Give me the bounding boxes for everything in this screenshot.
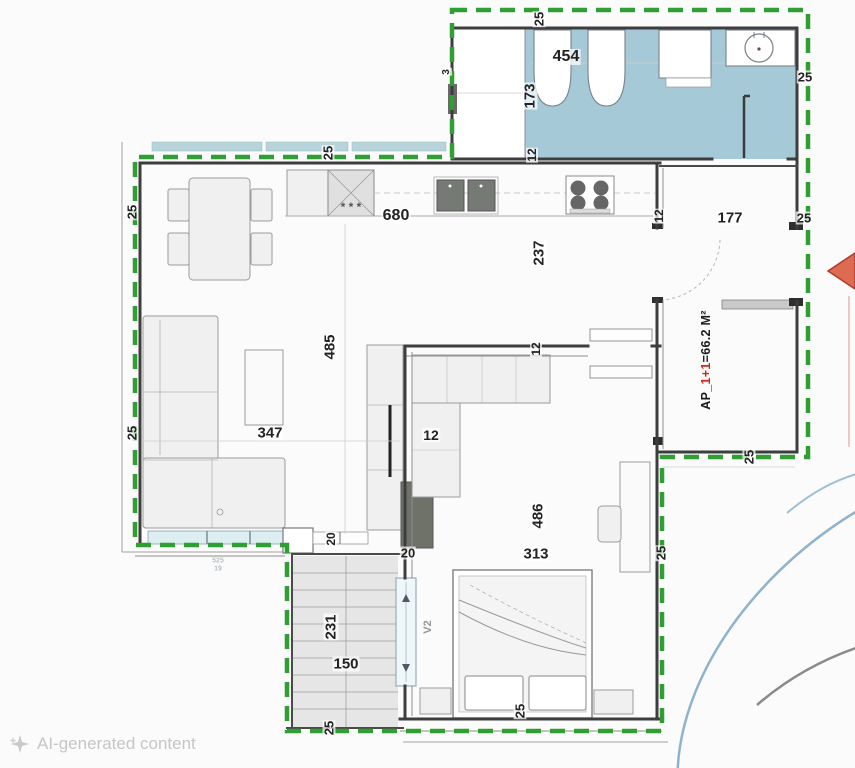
site-curve-small: [787, 473, 855, 513]
shelf-unit: [367, 345, 403, 530]
desk-chair: [598, 506, 621, 542]
ai-watermark-text: AI-generated content: [37, 734, 196, 754]
burner: [594, 181, 609, 196]
sparkle-pen-icon: [10, 734, 30, 754]
apartment-area-label: AP_1+1=66.2 M²: [699, 310, 713, 409]
burner: [571, 181, 586, 196]
ai-watermark: AI-generated content: [10, 734, 196, 754]
stairs-area: [293, 556, 398, 728]
living-room: [143, 178, 433, 548]
window-band: [352, 142, 446, 151]
bathroom: [448, 28, 797, 159]
shower-tray: [659, 30, 711, 78]
shower-ledge: [666, 78, 711, 87]
nightstand: [594, 690, 633, 714]
faint-annotation: 525 19: [212, 558, 224, 575]
chair: [168, 189, 189, 221]
freezer-stars-icon: * * *: [341, 200, 362, 214]
storage-room: [453, 28, 525, 159]
window-band: [266, 142, 348, 151]
washbasin-drain: [757, 47, 760, 50]
burner: [594, 196, 609, 211]
floor-plan-drawing: * * *: [0, 0, 855, 768]
kitchen-cabinet: [287, 170, 328, 216]
pillow: [529, 676, 586, 710]
ap-prefix: AP_: [699, 384, 713, 409]
faint-annotation-line2: 19: [212, 566, 224, 574]
door-leaf: [590, 366, 652, 378]
sofa-chaise: [143, 458, 285, 528]
floor-plan: * * *: [0, 0, 855, 768]
burner: [571, 196, 586, 211]
door-swing-arc: [659, 240, 720, 300]
ap-suffix: =66.2 M²: [699, 310, 713, 362]
dining-table: [189, 178, 250, 280]
coffee-table: [245, 350, 283, 425]
chair: [251, 189, 272, 221]
ap-highlight: 1+1: [699, 362, 713, 384]
window-band: [152, 142, 262, 151]
bidet: [588, 30, 625, 106]
kitchen: * * *: [285, 170, 657, 216]
toilet: [534, 30, 571, 106]
chair: [168, 233, 189, 265]
window-v2-label: V2: [422, 620, 434, 633]
entrance-arrow-icon: [828, 253, 855, 289]
bedroom: [412, 355, 650, 718]
nightstand: [420, 688, 451, 714]
door-leaf: [590, 329, 652, 341]
chair: [251, 233, 272, 265]
wardrobe: [412, 355, 550, 403]
stove-panel: [570, 209, 610, 213]
site-curve: [757, 638, 855, 705]
entrance-door-leaf: [722, 300, 793, 309]
staircase: [293, 556, 398, 728]
sink-drain: [480, 185, 483, 188]
pillow: [465, 676, 523, 710]
sink-drain: [449, 185, 452, 188]
hallway: [590, 222, 803, 445]
window-south: [148, 531, 285, 544]
desk: [620, 462, 650, 572]
faint-annotation-line1: 525: [212, 558, 224, 566]
